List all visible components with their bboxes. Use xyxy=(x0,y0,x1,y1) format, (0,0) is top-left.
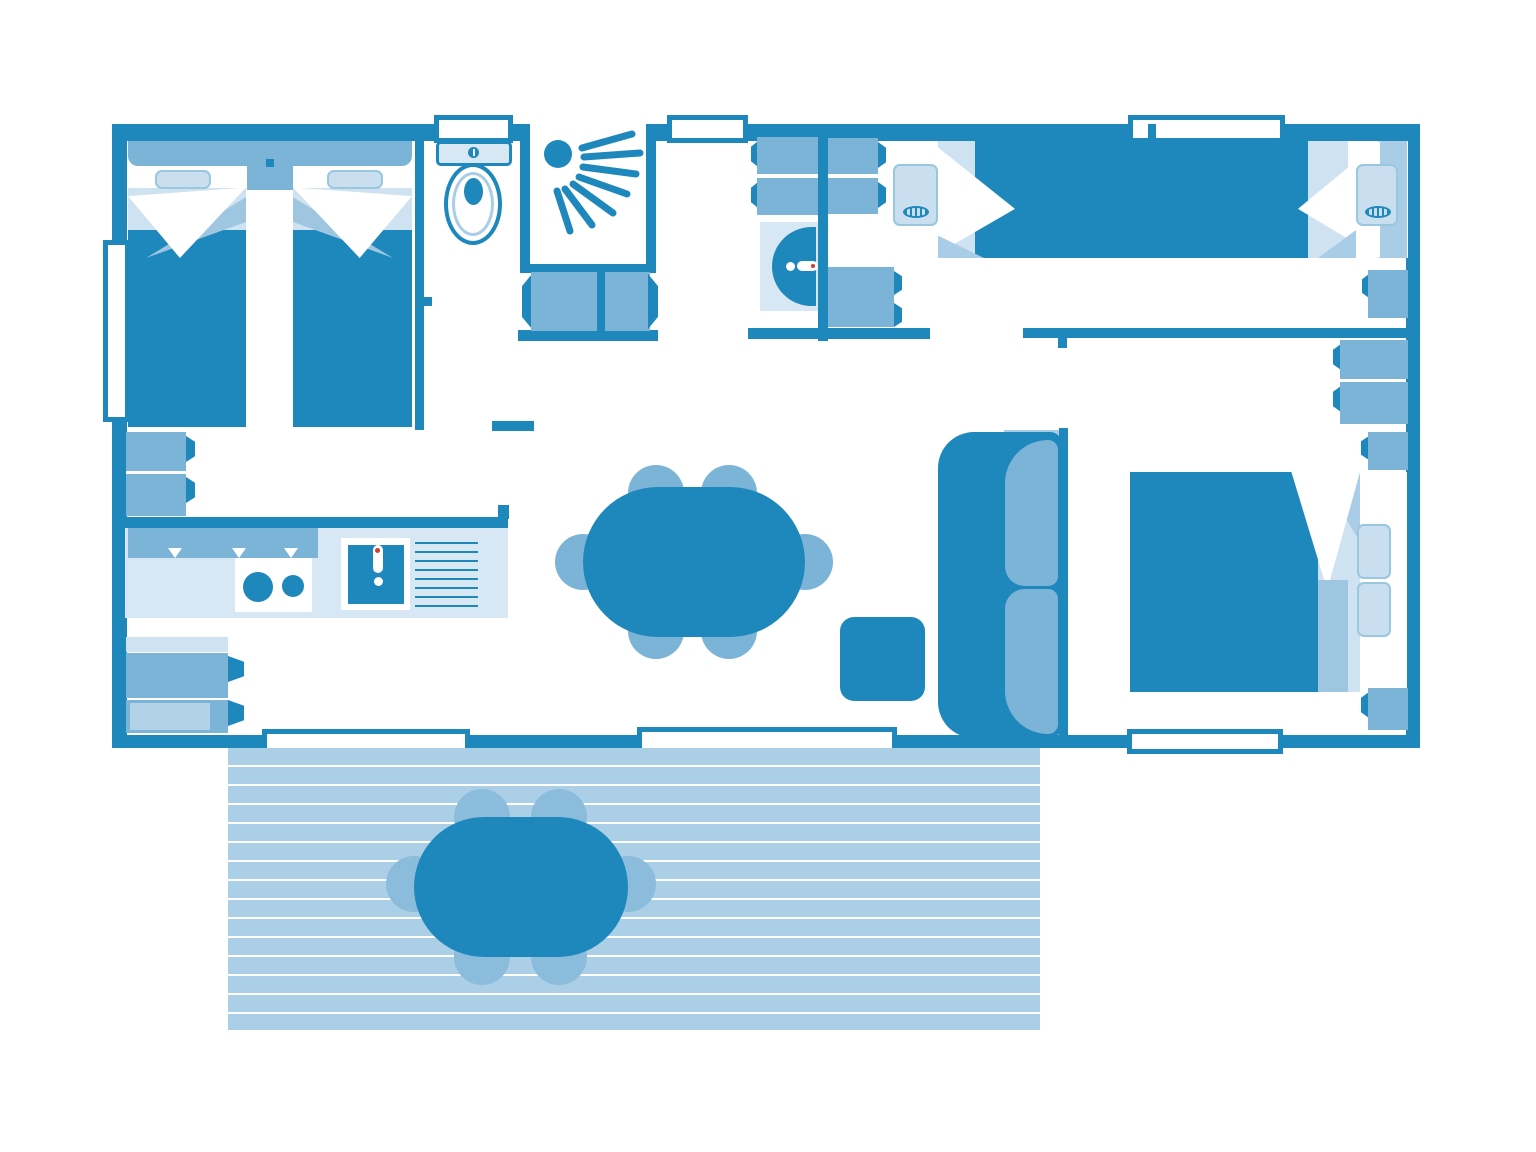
wardrobe-hinge-icon xyxy=(894,271,902,295)
single-bed-4-blanket xyxy=(1156,141,1312,258)
hall-cabinet xyxy=(605,272,650,331)
kitchen-low-unit xyxy=(126,653,228,698)
floor-plan xyxy=(0,0,1536,1152)
wall-corridor-north xyxy=(1023,328,1407,338)
shower-cubicle xyxy=(520,124,656,273)
wardrobe-hinge-icon xyxy=(878,142,886,168)
draining-board xyxy=(415,542,478,608)
pillow-embroidery-icon xyxy=(903,206,929,218)
wall-nub-wc-door xyxy=(424,297,432,306)
kitchen-low-unit-top xyxy=(126,637,228,652)
shower-spray-icon xyxy=(530,124,646,264)
wall-bath-south xyxy=(748,328,930,339)
wall-wc-south xyxy=(492,421,534,431)
bedroom3-wardrobe xyxy=(1368,270,1408,318)
toilet-drain xyxy=(464,178,483,205)
toilet-flush-slit xyxy=(473,149,475,156)
burner-large-icon xyxy=(243,572,273,602)
faucet-hot-dot xyxy=(375,548,380,553)
window-left-wall xyxy=(103,240,130,422)
shelf-under-shower xyxy=(518,330,658,341)
wardrobe-hinge-icon xyxy=(186,436,195,462)
single-bed-2-pillow xyxy=(327,170,383,189)
wall-bath-east xyxy=(818,124,828,341)
hall-wardrobe xyxy=(828,138,878,174)
bath-wardrobe xyxy=(757,178,818,215)
master-wardrobe xyxy=(1368,688,1408,730)
wardrobe-hinge-icon xyxy=(878,182,886,208)
wardrobe-hinge-icon xyxy=(186,477,195,503)
window-wc xyxy=(434,115,513,143)
faucet-hot-dot xyxy=(811,264,815,268)
wall-kitchen-north xyxy=(112,517,508,528)
bedroom1-wardrobe xyxy=(126,432,186,516)
single-bed-1-pillow xyxy=(155,170,211,189)
sink-drain xyxy=(374,577,383,586)
coffee-table xyxy=(840,617,925,701)
wall-nub-corridor xyxy=(1058,338,1067,348)
window-master xyxy=(1127,729,1283,754)
dining-table xyxy=(583,487,805,637)
wardrobe-hinge-icon xyxy=(894,303,902,327)
double-bed-pillow xyxy=(1357,582,1391,637)
wall-left xyxy=(112,124,127,748)
double-bed-edge-shadow xyxy=(1318,580,1348,692)
wall-bedroom1-east xyxy=(415,124,424,430)
unit-hinge-icon xyxy=(228,656,244,682)
hall-wardrobe xyxy=(828,178,878,214)
sofa-cushion xyxy=(1005,589,1058,734)
master-wardrobe xyxy=(1368,432,1408,470)
master-wardrobe xyxy=(1340,382,1408,424)
bedroom1-wardrobe-divider xyxy=(126,471,186,474)
burner-small-icon xyxy=(282,575,304,597)
wall-right xyxy=(1406,124,1420,748)
double-bed-blanket xyxy=(1130,472,1318,692)
sofa-cushion xyxy=(1005,440,1058,586)
hall-wardrobe xyxy=(828,267,894,327)
unit-hinge-icon xyxy=(228,700,244,726)
hall-cabinet xyxy=(531,272,598,331)
master-wardrobe xyxy=(1340,340,1408,379)
bath-wardrobe xyxy=(757,137,818,174)
cabinet-side xyxy=(648,274,658,329)
pillow-embroidery-icon xyxy=(1365,206,1391,218)
washbasin-drain xyxy=(786,262,795,271)
nightstand-knob xyxy=(266,159,274,167)
terrace-table xyxy=(414,817,628,957)
window-hall xyxy=(667,115,748,143)
double-bed-pillow xyxy=(1357,524,1391,579)
nightstand xyxy=(247,166,293,190)
wall-kitchen-lip xyxy=(498,505,509,519)
unit-inset-tint xyxy=(130,703,210,730)
